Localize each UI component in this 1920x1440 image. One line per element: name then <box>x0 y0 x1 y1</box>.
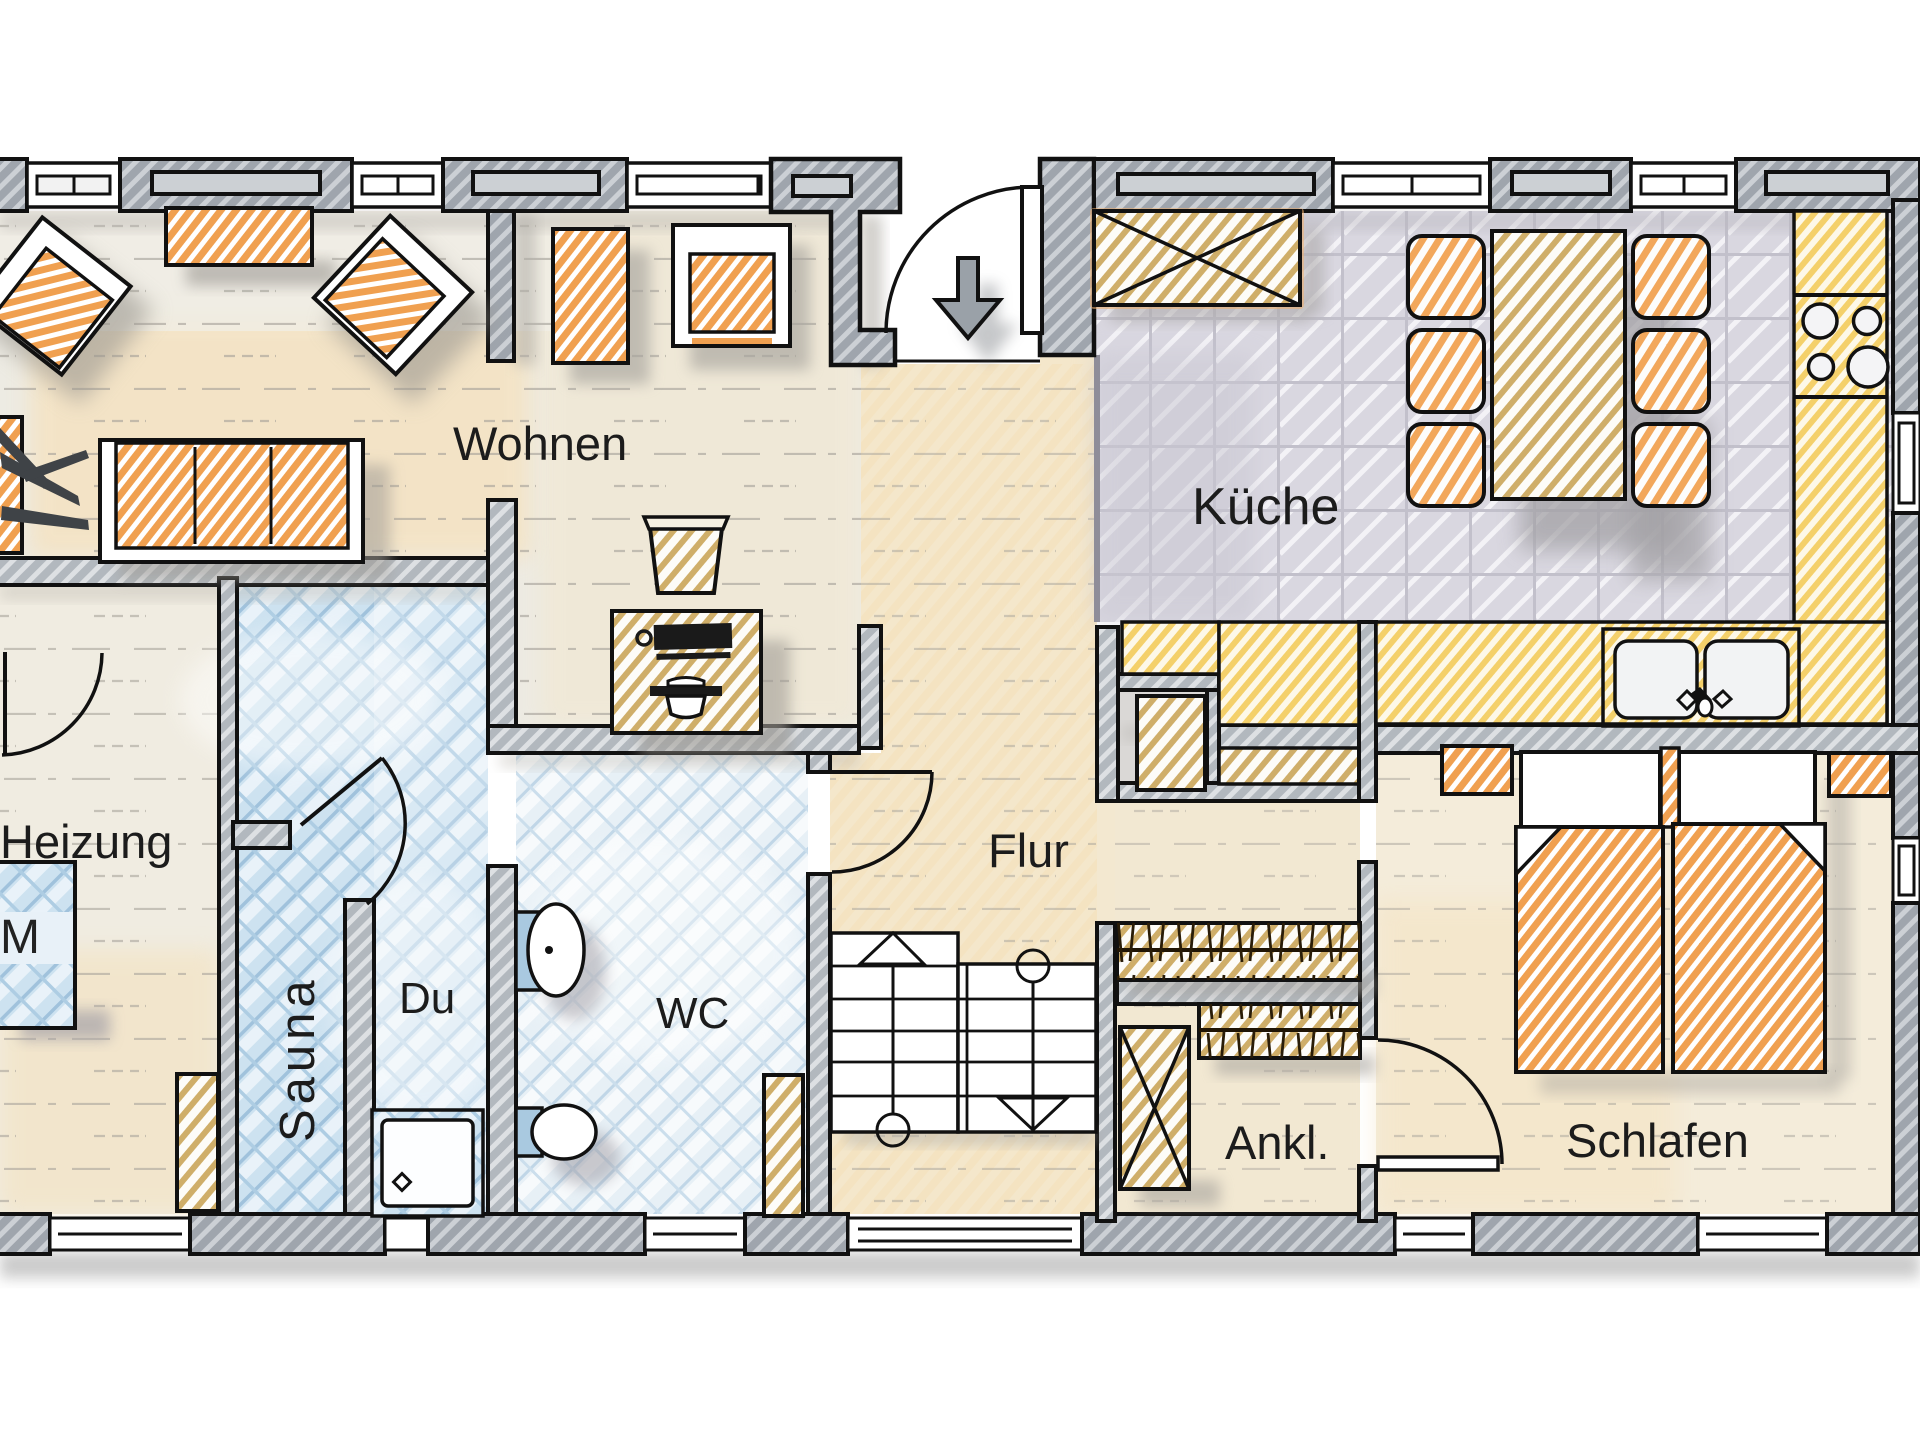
svg-text:Schlafen: Schlafen <box>1566 1114 1749 1167</box>
svg-text:Küche: Küche <box>1192 478 1339 536</box>
svg-text:Du: Du <box>399 974 455 1023</box>
svg-text:M: M <box>0 911 40 964</box>
svg-text:Sauna: Sauna <box>271 975 325 1142</box>
svg-text:Flur: Flur <box>988 824 1069 877</box>
svg-text:WC: WC <box>656 989 729 1038</box>
svg-text:Heizung: Heizung <box>0 815 172 868</box>
svg-text:Wohnen: Wohnen <box>453 417 627 470</box>
svg-text:Ankl.: Ankl. <box>1225 1116 1330 1169</box>
